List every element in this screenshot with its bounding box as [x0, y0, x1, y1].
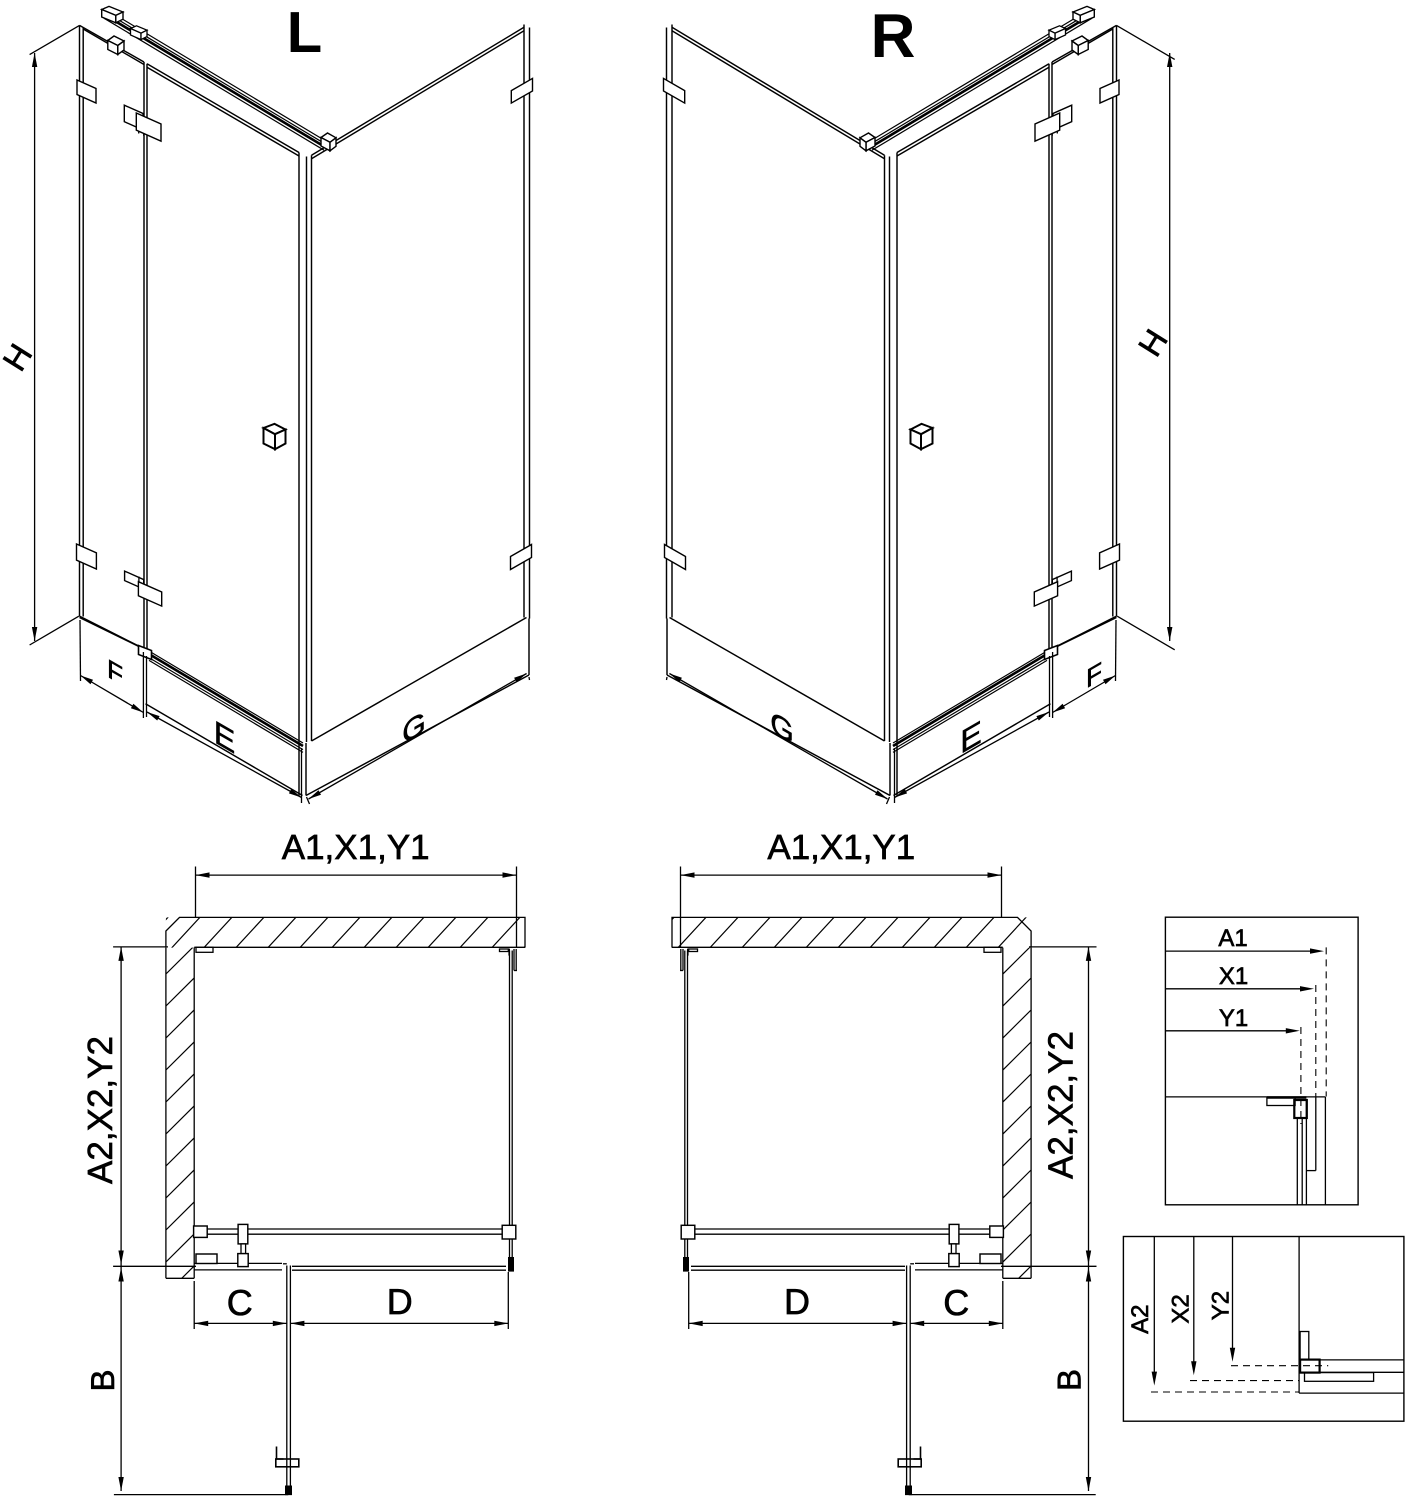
svg-text:A2: A2: [1127, 1305, 1154, 1334]
svg-text:C: C: [227, 1282, 253, 1323]
svg-text:X1: X1: [1219, 963, 1248, 990]
svg-text:A1,X1,Y1: A1,X1,Y1: [282, 828, 430, 867]
svg-text:L: L: [287, 0, 322, 65]
svg-text:C: C: [943, 1282, 969, 1323]
svg-text:Y1: Y1: [1219, 1005, 1248, 1032]
svg-text:D: D: [387, 1281, 413, 1322]
svg-text:X2: X2: [1168, 1294, 1195, 1323]
svg-text:A2,X2,Y2: A2,X2,Y2: [81, 1036, 120, 1184]
svg-text:B: B: [1050, 1369, 1087, 1391]
svg-text:A1,X1,Y1: A1,X1,Y1: [767, 828, 915, 867]
svg-text:D: D: [784, 1281, 810, 1322]
svg-text:R: R: [871, 2, 916, 71]
svg-text:Y2: Y2: [1208, 1291, 1235, 1320]
svg-text:A2,X2,Y2: A2,X2,Y2: [1042, 1031, 1081, 1179]
svg-text:B: B: [84, 1369, 121, 1391]
svg-text:A1: A1: [1218, 925, 1247, 952]
